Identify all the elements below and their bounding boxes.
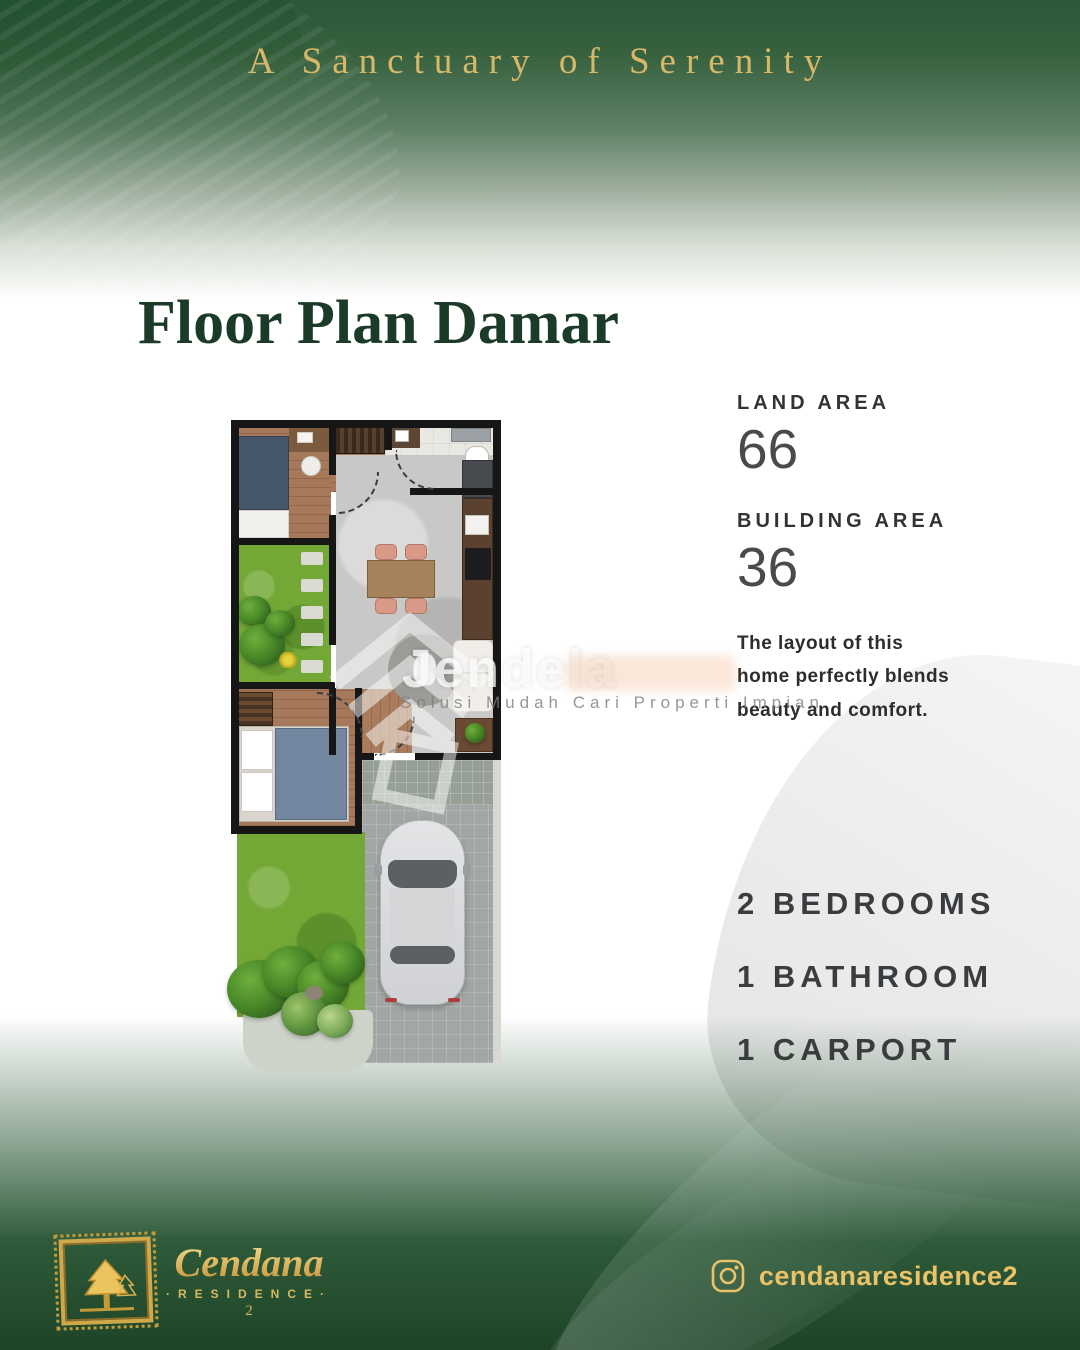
wall: [385, 420, 392, 450]
instagram-icon: [710, 1258, 746, 1294]
instagram-row[interactable]: cendanaresidence2: [710, 1258, 1018, 1294]
wardrobe-shelves: [335, 424, 385, 454]
brand-name: Cendana: [175, 1243, 324, 1283]
brand-logo: Cendana ·RESIDENCE· 2: [60, 1238, 332, 1324]
stepping-stone: [301, 552, 323, 565]
feature-carport: 1 CARPORT: [737, 1032, 995, 1068]
watermark-orange-smudge: [566, 655, 736, 691]
kitchen-sink: [465, 515, 489, 535]
feature-bathroom: 1 BATHROOM: [737, 959, 995, 995]
car-mirror-right: [463, 864, 471, 876]
garden-stone: [305, 986, 323, 1000]
bed1-pillow: [237, 510, 289, 538]
wall: [231, 420, 501, 428]
shower-shelf: [451, 428, 491, 442]
header-tagline: A Sanctuary of Serenity: [0, 40, 1080, 83]
dining-chair: [375, 544, 397, 560]
courtyard-bush: [265, 610, 295, 636]
poster-page: A Sanctuary of Serenity Floor Plan Damar…: [0, 0, 1080, 1350]
brand-residence-label: ·RESIDENCE·: [166, 1287, 332, 1301]
desk-laptop: [297, 432, 313, 443]
desk-chair: [301, 456, 321, 476]
car-taillight-left: [385, 998, 397, 1002]
yellow-flowers: [277, 652, 299, 668]
car-taillight-right: [448, 998, 460, 1002]
front-bush: [321, 942, 365, 984]
wall: [231, 420, 239, 834]
watermark-tagline: Solusi Mudah Cari Properti Impian: [400, 693, 780, 713]
bed2-pillow: [241, 730, 273, 770]
page-title: Floor Plan Damar: [138, 288, 619, 359]
wall: [231, 826, 362, 834]
wall: [231, 538, 335, 545]
brand-number: 2: [245, 1303, 253, 1320]
wall: [410, 488, 501, 495]
stats-panel: LAND AREA 66 BUILDING AREA 36 The layout…: [737, 392, 1037, 727]
features-list: 2 BEDROOMS 1 BATHROOM 1 CARPORT: [737, 886, 995, 1105]
feature-bedrooms: 2 BEDROOMS: [737, 886, 995, 922]
building-area-label: BUILDING AREA: [737, 510, 1037, 533]
car-roof: [390, 888, 455, 946]
bathroom-sink: [395, 430, 409, 442]
stove: [465, 548, 491, 580]
car-rear-window: [390, 946, 455, 964]
building-area-value: 36: [737, 537, 1037, 598]
bed2-pillow: [241, 772, 273, 812]
dining-table: [367, 560, 435, 598]
dining-chair: [405, 544, 427, 560]
bedroom2-wardrobe: [237, 692, 273, 726]
car-mirror-left: [374, 864, 382, 876]
car-windshield: [388, 860, 457, 888]
land-area-label: LAND AREA: [737, 392, 1037, 415]
land-area-value: 66: [737, 419, 1037, 480]
wall: [329, 420, 336, 475]
stepping-stone: [301, 579, 323, 592]
bed1-blanket: [237, 436, 289, 510]
front-bush-light: [317, 1004, 353, 1038]
instagram-handle[interactable]: cendanaresidence2: [759, 1261, 1018, 1292]
stamp-frame-icon: [59, 1236, 154, 1325]
brand-text: Cendana ·RESIDENCE· 2: [166, 1243, 332, 1320]
golden-tree-icon: [70, 1253, 142, 1321]
